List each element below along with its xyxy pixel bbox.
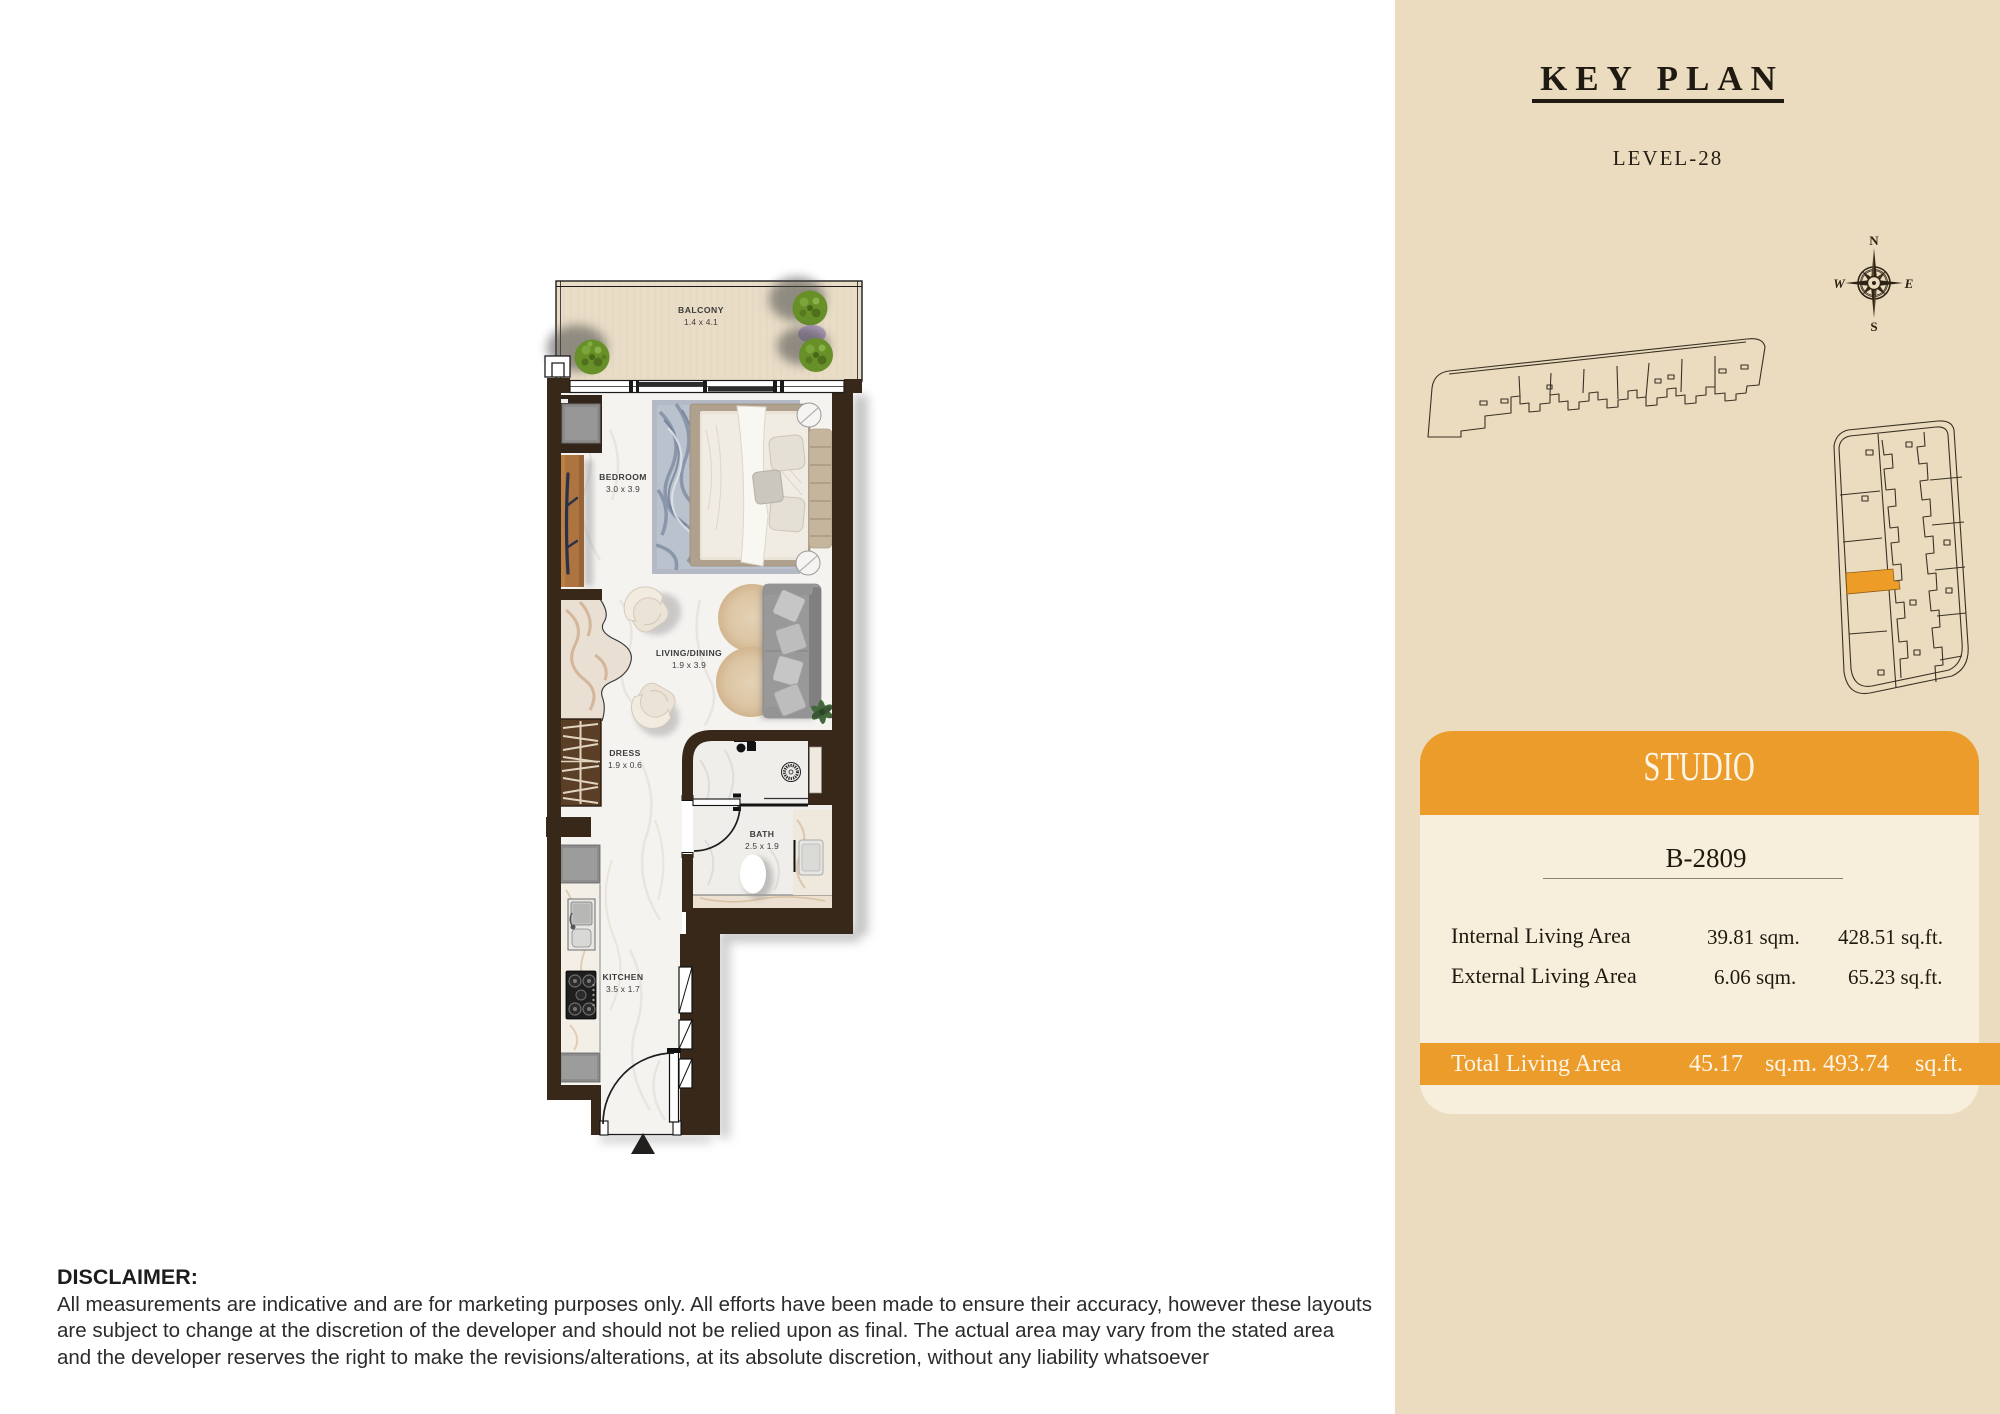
svg-text:2.5 x 1.9: 2.5 x 1.9 xyxy=(745,841,779,851)
svg-text:1.9 x 0.6: 1.9 x 0.6 xyxy=(608,760,642,770)
svg-text:1.9 x 3.9: 1.9 x 3.9 xyxy=(672,660,706,670)
svg-text:S: S xyxy=(1870,319,1877,332)
svg-text:N: N xyxy=(1869,234,1879,248)
svg-text:DRESS: DRESS xyxy=(609,748,641,758)
svg-text:E: E xyxy=(1904,276,1914,291)
svg-text:KITCHEN: KITCHEN xyxy=(603,972,644,982)
svg-text:BEDROOM: BEDROOM xyxy=(599,472,647,482)
svg-text:3.5 x 1.7: 3.5 x 1.7 xyxy=(606,984,640,994)
svg-text:3.0 x 3.9: 3.0 x 3.9 xyxy=(606,484,640,494)
svg-text:1.4 x 4.1: 1.4 x 4.1 xyxy=(684,317,718,327)
svg-text:BALCONY: BALCONY xyxy=(678,305,724,315)
svg-text:BATH: BATH xyxy=(750,829,775,839)
svg-text:LIVING/DINING: LIVING/DINING xyxy=(656,648,722,658)
svg-text:W: W xyxy=(1833,276,1846,291)
